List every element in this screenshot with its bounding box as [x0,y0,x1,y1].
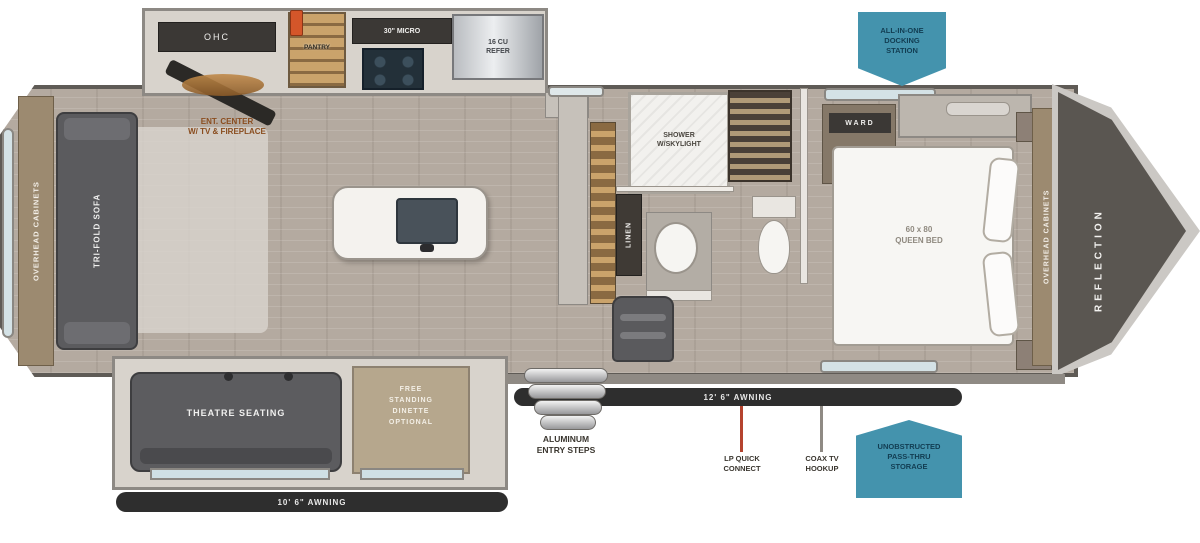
rv-floorplan: OVERHEAD CABINETS TRI-FOLD SOFA OHC PANT… [0,0,1200,543]
dinette: FREE STANDING DINETTE OPTIONAL [352,366,470,474]
living-area-rug [116,127,268,333]
coax-pointer [820,406,823,452]
microwave-label: 30" MICRO [352,18,452,44]
tri-fold-sofa-label: TRI-FOLD SOFA [58,114,136,348]
kitchen-counter [558,95,588,305]
lp-connect-label: LP QUICK CONNECT [696,454,788,474]
refrigerator: 16 CU REFER [452,14,544,80]
fireplace-icon [182,74,264,96]
ent-center-line1: ENT. CENTER [152,117,302,127]
rear-overhead-cabinets-label: OVERHEAD CABINETS [19,97,53,365]
store-line3: STORAGE [856,462,962,472]
dock-line2: DOCKING [858,36,946,46]
dinette-line1: FREE [354,384,468,395]
entry-step-icon [540,415,596,430]
refer-label-line1: 16 CU [488,38,508,47]
entry-step-icon [528,384,606,399]
steps-line2: ENTRY STEPS [502,445,630,456]
lp-line1: LP QUICK [696,454,788,464]
dinette-line2: STANDING [354,395,468,406]
dinette-line3: DINETTE [354,406,468,417]
cupholder-icon [224,372,233,381]
ent-center-line2: W/ TV & FIREPLACE [152,127,302,137]
dock-line3: STATION [858,46,946,56]
kitchen-ohc: OHC [158,22,276,52]
cupholder-icon [284,372,293,381]
lp-line2: CONNECT [696,464,788,474]
store-line1: UNOBSTRUCTED [856,442,962,452]
refer-label-line2: REFER [486,47,510,56]
coax-line2: HOOKUP [778,464,866,474]
theatre-seating-label: THEATRE SEATING [132,408,340,418]
slideout-awning-bar: 10' 6" AWNING [116,492,508,512]
bed-size-label: 60 x 80 [864,224,974,235]
slideout-window [360,468,464,480]
tall-cabinet [590,122,616,304]
bedroom-partition-wall [800,88,808,284]
toilet-tank-icon [752,196,796,218]
coax-label: COAX TV HOOKUP [778,454,866,474]
theatre-seating: THEATRE SEATING [130,372,342,472]
lp-connect-pointer [740,406,743,452]
shower-line1: SHOWER [631,131,727,140]
docking-station-badge: ALL-IN-ONE DOCKING STATION [858,12,946,86]
range-cooktop-icon [362,48,424,90]
rear-overhead-cabinets: OVERHEAD CABINETS [18,96,54,366]
dock-line1: ALL-IN-ONE [858,26,946,36]
toilet-bowl-icon [758,220,790,274]
bed-type-label: QUEEN BED [864,235,974,246]
steps-line1: ALUMINUM [502,434,630,445]
top-wall-window [548,86,604,97]
island-faucet-icon [420,244,434,252]
entry-steps-label: ALUMINUM ENTRY STEPS [502,434,630,456]
wardrobe-label: WARD [829,113,891,133]
pass-thru-storage-badge: UNOBSTRUCTED PASS-THRU STORAGE [856,420,962,498]
rear-window [2,128,14,338]
shower: SHOWER W/SKYLIGHT [628,92,730,194]
linen-label: LINEN [617,195,641,275]
opt-marker [290,10,303,36]
entry-step-icon [534,400,602,415]
shower-label: SHOWER W/SKYLIGHT [631,131,727,149]
bed-label: 60 x 80 QUEEN BED [864,224,974,246]
shower-line2: W/SKYLIGHT [631,140,727,149]
bath-partition-wall [616,186,734,192]
dinette-line4: OPTIONAL [354,417,468,428]
queen-bed: 60 x 80 QUEEN BED [832,146,1014,346]
slideout-window [150,468,330,480]
interior-steps [612,296,674,362]
island-sink-icon [396,198,458,244]
bedroom-dresser [898,94,1032,138]
bath-cabinet [728,90,792,182]
coax-line1: COAX TV [778,454,866,464]
brand-label: REFLECTION [1086,150,1112,370]
entry-step-icon [524,368,608,383]
dinette-label: FREE STANDING DINETTE OPTIONAL [354,384,468,428]
linen-cabinet: LINEN [616,194,642,276]
bedroom-window-bottom [820,360,938,373]
bath-sink-icon [654,222,698,274]
store-line2: PASS-THRU [856,452,962,462]
pantry-label: PANTRY [290,44,344,51]
ent-center-label: ENT. CENTER W/ TV & FIREPLACE [152,117,302,137]
tri-fold-sofa: TRI-FOLD SOFA [56,112,138,350]
